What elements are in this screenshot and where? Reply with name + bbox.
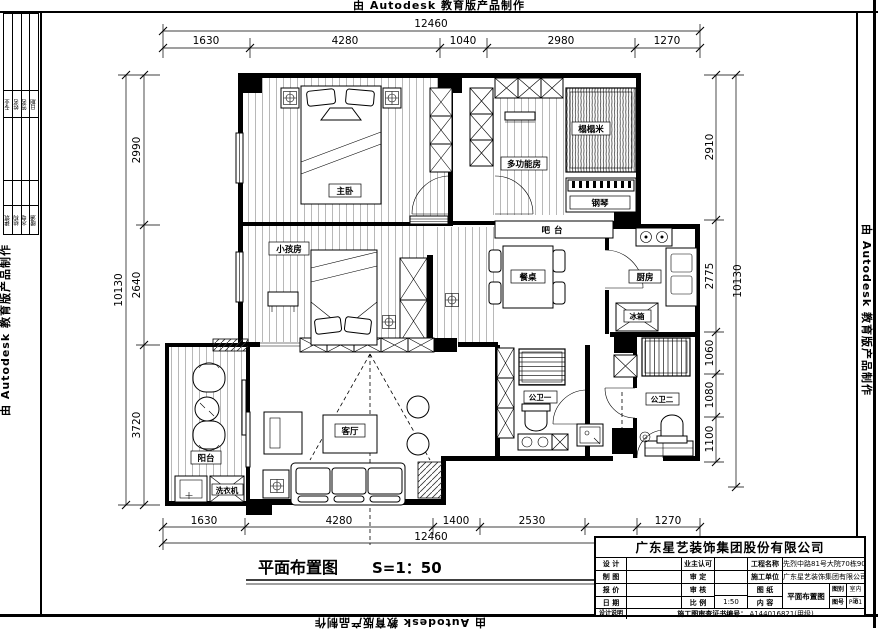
room-label-piano: 钢琴 [591, 198, 609, 209]
cert-label: 施工图审查证书编号： [677, 610, 747, 618]
dim-left-seg: 2990 [131, 137, 143, 164]
dim-top-seg: 2980 [548, 35, 575, 47]
notes-label: 设计说明 [596, 609, 627, 619]
dim-top-overall: 12460 [414, 18, 447, 30]
dim-left-seg: 3720 [131, 412, 143, 439]
bathroom-2-fixtures [640, 338, 690, 443]
room-label-bar: 吧台 [541, 225, 566, 236]
title-block-row: 制 图 审 定 施工单位 广东星艺装饰集团有限公司 [596, 571, 864, 584]
dim-right-seg: 2910 [704, 134, 716, 161]
sig-trade: 建筑 [5, 215, 11, 226]
quote-value [627, 584, 681, 597]
number-row: 图号 P-01 [830, 597, 864, 609]
scale-value: 1:50 [715, 596, 747, 608]
room-label-dining: 餐桌 [518, 272, 537, 283]
builder-label: 施工单位 [748, 571, 783, 583]
dim-right-seg: 1060 [704, 340, 716, 367]
dim-bottom-overall: 12460 [414, 531, 447, 543]
title-block-row: 设 计 业主认可 工程名称 先烈中路81号大院70栋904号 [596, 558, 864, 571]
content-label: 内 容 [748, 597, 782, 609]
draft-label: 制 图 [596, 571, 627, 583]
dims-left: 10130 2990 2640 3720 [113, 71, 160, 509]
signature-strip-row [4, 14, 38, 91]
title-block-bottom-row: 设计说明 施工图审查证书编号： A144016821(甲级) [596, 609, 864, 619]
plan-title-text: 平面布置图 [258, 558, 338, 577]
frame-right-inner-line [856, 11, 858, 616]
quote-label: 报 价 [596, 584, 626, 597]
sheet-content-value: 平面布置图 [783, 584, 830, 608]
room-label-kids: 小孩房 [275, 244, 302, 255]
scale-label: 比 例 [682, 597, 714, 609]
room-label-tatami: 榻榻米 [578, 124, 604, 135]
dim-top-seg: 1040 [450, 35, 477, 47]
autodesk-banner-bottom: 由 Autodesk 教育版产品制作 [285, 616, 515, 628]
room-label-master: 主卧 [336, 186, 354, 197]
design-value [627, 558, 682, 570]
design-label: 设 计 [596, 558, 627, 570]
drawing-title: 平面布置图 S=1：50 [246, 558, 612, 584]
dim-right-seg: 2775 [704, 263, 716, 290]
review-value [715, 584, 747, 596]
room-label-fridge: 冰箱 [630, 311, 645, 321]
signature-strip-trades: 建筑 结构 水电 暖通 [4, 206, 38, 234]
dim-bottom-seg: 1270 [655, 515, 682, 527]
sig-trade: 暖通 [31, 215, 37, 226]
dim-left-seg: 2640 [131, 272, 143, 299]
sheet-number-label: 图号 [830, 597, 847, 609]
owner-approve-value [715, 558, 748, 570]
autodesk-banner-left: 由 Autodesk 教育版产品制作 [0, 215, 12, 445]
approve-label: 审 定 [682, 571, 715, 583]
dim-left-overall: 10130 [113, 273, 125, 306]
sig-header: 签名 [22, 99, 28, 110]
builder-value: 广东星艺装饰集团有限公司 [783, 571, 864, 583]
signature-strip-row [4, 118, 38, 181]
review-label: 审 核 [682, 584, 714, 597]
dim-right-seg: 1080 [704, 382, 716, 409]
owner-approve-label: 业主认可 [682, 558, 715, 570]
floor-plan-svg: 主卧 小孩房 多功能房 榻榻米 钢琴 吧台 餐桌 厨房 冰箱 客厅 阳台 洗衣机… [41, 12, 856, 614]
project-value: 先烈中路81号大院70栋904号 [783, 558, 864, 570]
dims-right: 2910 2775 1060 1080 1100 10130 [704, 71, 744, 491]
dim-right-seg: 1100 [704, 426, 716, 453]
title-block-rows-3-4: 报 价 日 期 审 核 比 例 1:50 图 纸 内 容 平面布置图 图别 室内… [596, 584, 864, 609]
dim-bottom-seg: 1630 [191, 515, 218, 527]
dim-bottom-seg: 1400 [443, 515, 470, 527]
signature-strip-row [4, 181, 38, 206]
dim-bottom-seg: 4280 [326, 515, 353, 527]
room-label-bath1: 公卫一 [529, 393, 552, 402]
cert-value: A144016821(甲级) [749, 610, 813, 618]
category-label: 图别 [830, 584, 847, 596]
signature-strip-headers: 专业 姓名 签名 日期 [4, 91, 38, 118]
kitchen-fixtures [605, 228, 697, 306]
date-label: 日 期 [596, 597, 626, 609]
dim-right-overall: 10130 [732, 264, 744, 297]
sheet-number-value: P-01 [847, 597, 864, 609]
dim-top-seg: 1270 [654, 35, 681, 47]
sig-trade: 结构 [14, 215, 20, 226]
sig-header: 专业 [5, 99, 11, 110]
approve-value [715, 571, 748, 583]
sig-trade: 水电 [22, 215, 28, 226]
plan-scale-text: S=1：50 [372, 559, 442, 577]
dim-top-seg: 1630 [193, 35, 220, 47]
cert-row: 施工图审查证书编号： A144016821(甲级) [627, 609, 864, 619]
sig-header: 姓名 [14, 99, 20, 110]
room-label-multi: 多功能房 [507, 159, 541, 170]
room-label-living: 客厅 [340, 426, 359, 437]
cad-sheet: { "autodesk_banner": "由 Autodesk 教育版产品制作… [0, 0, 878, 628]
company-name: 广东星艺装饰集团股份有限公司 [596, 538, 864, 558]
sig-header: 日期 [31, 99, 37, 110]
signature-strip-table: 专业 姓名 签名 日期 建筑 结构 水电 暖通 [3, 13, 39, 235]
draft-value [627, 571, 682, 583]
dims-top: 12460 1630 4280 1040 2980 1270 [159, 18, 704, 58]
dim-top-seg: 4280 [332, 35, 359, 47]
title-block: 广东星艺装饰集团股份有限公司 设 计 业主认可 工程名称 先烈中路81号大院70… [594, 536, 866, 617]
room-label-balcony: 阳台 [197, 453, 215, 464]
dim-bottom-seg: 2530 [519, 515, 546, 527]
frame-right-outer-line [873, 0, 876, 628]
date-value [627, 597, 681, 609]
sheet-label: 图 纸 [748, 584, 782, 597]
room-label-kitchen: 厨房 [636, 272, 653, 283]
category-value: 室内施 [847, 584, 864, 596]
autodesk-banner-right: 由 Autodesk 教育版产品制作 [860, 195, 872, 425]
project-label: 工程名称 [748, 558, 783, 570]
room-label-washer: 洗衣机 [216, 485, 239, 495]
room-label-bath2: 公卫二 [651, 395, 674, 404]
category-row: 图别 室内施 [830, 584, 864, 597]
